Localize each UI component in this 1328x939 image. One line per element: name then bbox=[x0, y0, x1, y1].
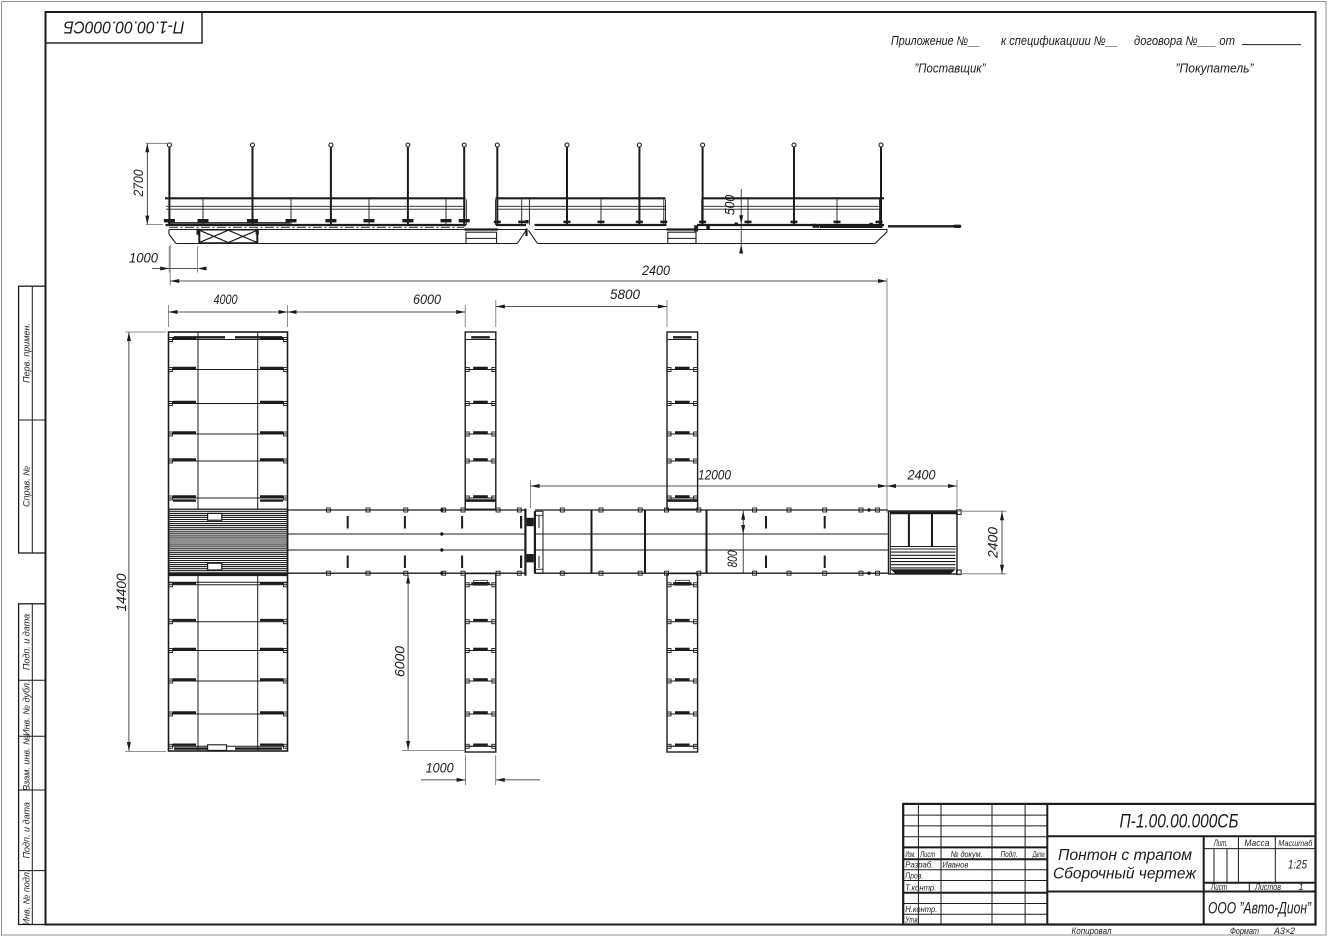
svg-text:Перв. примен.: Перв. примен. bbox=[21, 323, 31, 383]
svg-text:Иванов: Иванов bbox=[942, 860, 969, 870]
svg-text:Дата: Дата bbox=[1032, 849, 1045, 859]
svg-text:2400: 2400 bbox=[641, 262, 670, 278]
svg-text:”Поставщик”: ”Поставщик” bbox=[915, 61, 987, 76]
svg-text:Изм.: Изм. bbox=[906, 849, 916, 859]
svg-text:1000: 1000 bbox=[426, 760, 454, 776]
svg-text:Приложение №__: Приложение №__ bbox=[891, 34, 980, 48]
svg-text:Листов: Листов bbox=[1254, 882, 1281, 892]
svg-text:2400: 2400 bbox=[985, 527, 1001, 559]
svg-text:к спецификациии №__: к спецификациии №__ bbox=[1001, 34, 1118, 48]
svg-text:Инв. № подл.: Инв. № подл. bbox=[21, 870, 31, 926]
svg-text:500: 500 bbox=[722, 195, 738, 215]
svg-text:Справ. №: Справ. № bbox=[21, 466, 31, 507]
svg-text:4000: 4000 bbox=[214, 291, 238, 307]
svg-text:П-1.00.00.000СБ: П-1.00.00.000СБ bbox=[64, 18, 185, 38]
svg-text:№ докум.: № докум. bbox=[951, 849, 983, 859]
svg-text:Масштаб: Масштаб bbox=[1278, 838, 1313, 848]
svg-text:800: 800 bbox=[724, 550, 740, 567]
svg-text:6000: 6000 bbox=[391, 646, 407, 677]
svg-text:12000: 12000 bbox=[698, 467, 731, 483]
svg-text:Формат: Формат bbox=[1230, 926, 1259, 936]
svg-text:6000: 6000 bbox=[413, 291, 441, 307]
svg-text:Подп. и дата: Подп. и дата bbox=[21, 802, 31, 858]
svg-text:1:25: 1:25 bbox=[1288, 858, 1307, 872]
svg-text:Взам. инв. №: Взам. инв. № bbox=[21, 735, 31, 791]
svg-text:Разраб.: Разраб. bbox=[905, 860, 933, 870]
svg-text:1000: 1000 bbox=[129, 250, 158, 266]
svg-text:Т.контр.: Т.контр. bbox=[905, 883, 936, 893]
svg-text:5800: 5800 bbox=[610, 286, 640, 302]
svg-text:Копировал: Копировал bbox=[1072, 926, 1112, 936]
svg-text:Лист: Лист bbox=[1210, 882, 1227, 892]
svg-text:1: 1 bbox=[1298, 882, 1303, 892]
svg-text:Н.контр.: Н.контр. bbox=[905, 904, 937, 914]
svg-text:14400: 14400 bbox=[113, 573, 129, 611]
svg-text:”Покупатель”: ”Покупатель” bbox=[1176, 61, 1255, 76]
svg-text:Масса: Масса bbox=[1244, 838, 1269, 848]
svg-text:Пров.: Пров. bbox=[905, 870, 923, 880]
svg-text:Подп.: Подп. bbox=[1001, 849, 1018, 859]
svg-text:2700: 2700 bbox=[130, 169, 146, 197]
svg-text:2400: 2400 bbox=[907, 467, 936, 483]
svg-text:Понтон с трапом: Понтон с трапом bbox=[1058, 847, 1192, 864]
svg-text:Утв.: Утв. bbox=[905, 914, 920, 924]
svg-text:Подп. и дата: Подп. и дата bbox=[21, 614, 31, 670]
svg-text:П-1.00.00.000СБ: П-1.00.00.000СБ bbox=[1120, 811, 1239, 833]
svg-text:ООО ”Авто-Дион”: ООО ”Авто-Дион” bbox=[1208, 900, 1312, 918]
svg-text:Лист: Лист bbox=[920, 849, 936, 859]
svg-text:Сборочный чертеж: Сборочный чертеж bbox=[1053, 866, 1197, 883]
svg-text:договора №___ от: договора №___ от bbox=[1134, 34, 1235, 48]
svg-text:А3×2: А3×2 bbox=[1273, 926, 1295, 936]
svg-text:Инв. № дубл.: Инв. № дубл. bbox=[21, 681, 31, 736]
svg-text:Лит.: Лит. bbox=[1213, 838, 1228, 848]
